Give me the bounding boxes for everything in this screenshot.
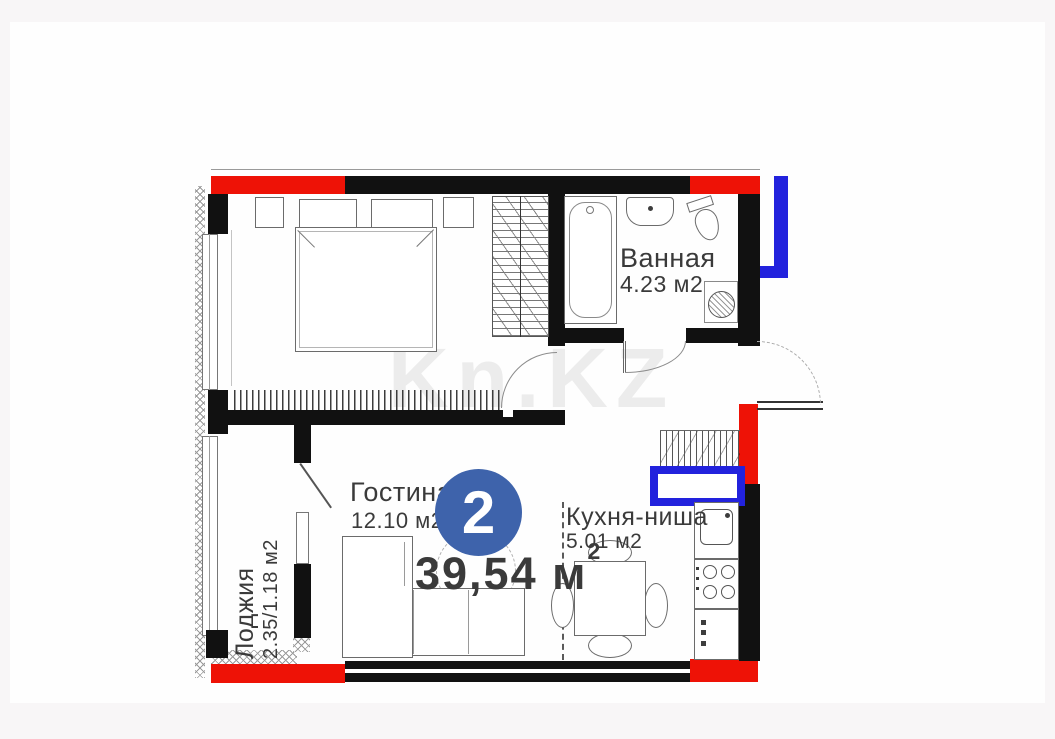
wall-pillar-left-bottom [206, 630, 228, 658]
room-count-number: 2 [462, 478, 495, 547]
kitchen-sink-faucet [725, 513, 730, 518]
balcony-door-leaf [299, 463, 332, 508]
wall-top-red-left [211, 176, 345, 194]
bathtub-drain [586, 206, 594, 214]
cabinet-handle-dot [701, 630, 706, 635]
wall-right-lower [739, 484, 760, 661]
bathroom-sink [626, 197, 674, 226]
bathroom-area: 4.23 м2 [620, 272, 703, 296]
stove-knob [696, 567, 699, 570]
bedroom-sliding-wardrobe-hatch [234, 390, 500, 410]
hall-closet-hatch [660, 430, 740, 467]
exterior-wall-hatch-loggia-corner [293, 638, 310, 652]
wall-loggia-divider-top [294, 425, 311, 463]
wall-bottom-red-right [690, 659, 758, 682]
living-room-area: 12.10 м2 [351, 509, 444, 532]
bedroom-curtain-line [231, 230, 232, 386]
bedroom-window [202, 234, 218, 390]
sofa-cushion-line [404, 542, 405, 586]
loggia-divider-window [296, 512, 309, 564]
room-count-badge: 2 [435, 469, 522, 556]
dining-chair-bottom [588, 633, 632, 658]
wall-bathroom-bottom-left [548, 328, 624, 343]
stove-burner [721, 565, 735, 579]
wall-bottom-black-outer [345, 661, 693, 669]
wall-right-upper [738, 194, 760, 346]
wall-bathroom-bottom-right [686, 328, 740, 343]
bed-blanket-line [299, 231, 433, 348]
sofa-cushion-line [413, 590, 414, 654]
loggia-window [202, 436, 218, 636]
bedroom-door-jamb-notch [503, 410, 513, 417]
sofa-chaise [342, 536, 413, 658]
stove-knob [696, 577, 699, 580]
total-area: 39,54 м2 [415, 548, 600, 600]
nightstand-left [255, 197, 284, 228]
loggia-area: 2.35/1.18 м2 [260, 439, 283, 659]
bed-pillow-right [371, 199, 433, 230]
apartment-floor-plan: Kn.KZ [0, 0, 1055, 739]
total-area-superscript: 2 [587, 538, 600, 564]
wall-top-red-right [690, 176, 760, 194]
bed-pillow-left [299, 199, 357, 230]
stove-burner [721, 585, 735, 599]
wall-top-black [345, 176, 690, 194]
stove-knob [696, 587, 699, 590]
toilet-bowl [692, 206, 724, 244]
total-area-unit: м [552, 548, 587, 599]
cabinet-handle-dot [701, 620, 706, 625]
floor-plan-image: Kn.KZ [0, 0, 1055, 739]
loggia-window-mullion [209, 436, 210, 636]
blue-highlight-vertical [774, 176, 788, 278]
blue-highlight-frame [650, 466, 745, 506]
wall-loggia-divider-bottom [294, 564, 311, 638]
wall-bathroom-left [548, 194, 565, 346]
nightstand-right [443, 197, 474, 228]
outer-wall-face-line [211, 169, 760, 170]
bedroom-window-mullion [209, 234, 210, 390]
dining-chair-right [644, 583, 668, 628]
loggia-label: Лоджия [231, 439, 260, 659]
wall-pillar-left-top [208, 194, 228, 234]
bathroom-label: Ванная [620, 244, 715, 272]
bathroom-sink-faucet [648, 206, 653, 211]
bedroom-wardrobe-rail [520, 196, 521, 337]
wall-bottom-black-inner [345, 673, 693, 682]
stove-burner [703, 585, 717, 599]
stove-burner [703, 565, 717, 579]
loggia-label-block: Лоджия 2.35/1.18 м2 [231, 439, 293, 659]
wall-bottom-red-left [211, 664, 345, 683]
bathtub-inner [569, 202, 612, 318]
kitchen-niche-label: Кухня-ниша [566, 504, 708, 530]
washing-machine-drum [708, 291, 735, 318]
total-area-value: 39,54 [415, 548, 538, 599]
cabinet-handle-dot [701, 641, 706, 646]
